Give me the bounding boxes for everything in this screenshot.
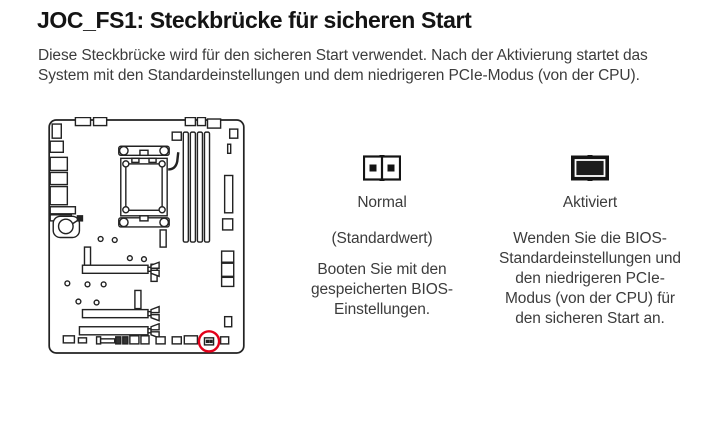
- intro-text: Diese Steckbrücke wird für den sicheren …: [38, 46, 686, 86]
- state-sublabel-default: (Standardwert): [294, 229, 470, 249]
- audio-connector: [53, 216, 82, 238]
- state-description-aktiviert: Wenden Sie die BIOS-Standardeinstellunge…: [496, 229, 684, 329]
- jumper-closed-icon: [496, 155, 684, 181]
- jumper-open-icon: [294, 155, 470, 181]
- motherboard-diagram: [45, 117, 249, 357]
- manual-page: { "page": { "title": "JOC_FS1: Steckbrüc…: [0, 0, 714, 436]
- state-column-aktiviert: Aktiviert Wenden Sie die BIOS-Standardei…: [496, 155, 684, 329]
- state-column-normal: Normal (Standardwert) Booten Sie mit den…: [294, 155, 470, 320]
- motherboard-line-art: [45, 117, 249, 357]
- joc-fs1-jumper: [204, 338, 213, 345]
- state-description-normal: Booten Sie mit den gespeicherten BIOS-Ei…: [294, 260, 470, 320]
- state-label-aktiviert: Aktiviert: [496, 193, 684, 213]
- page-title: JOC_FS1: Steckbrücke für sicheren Start: [37, 7, 471, 34]
- state-label-normal: Normal: [294, 193, 470, 213]
